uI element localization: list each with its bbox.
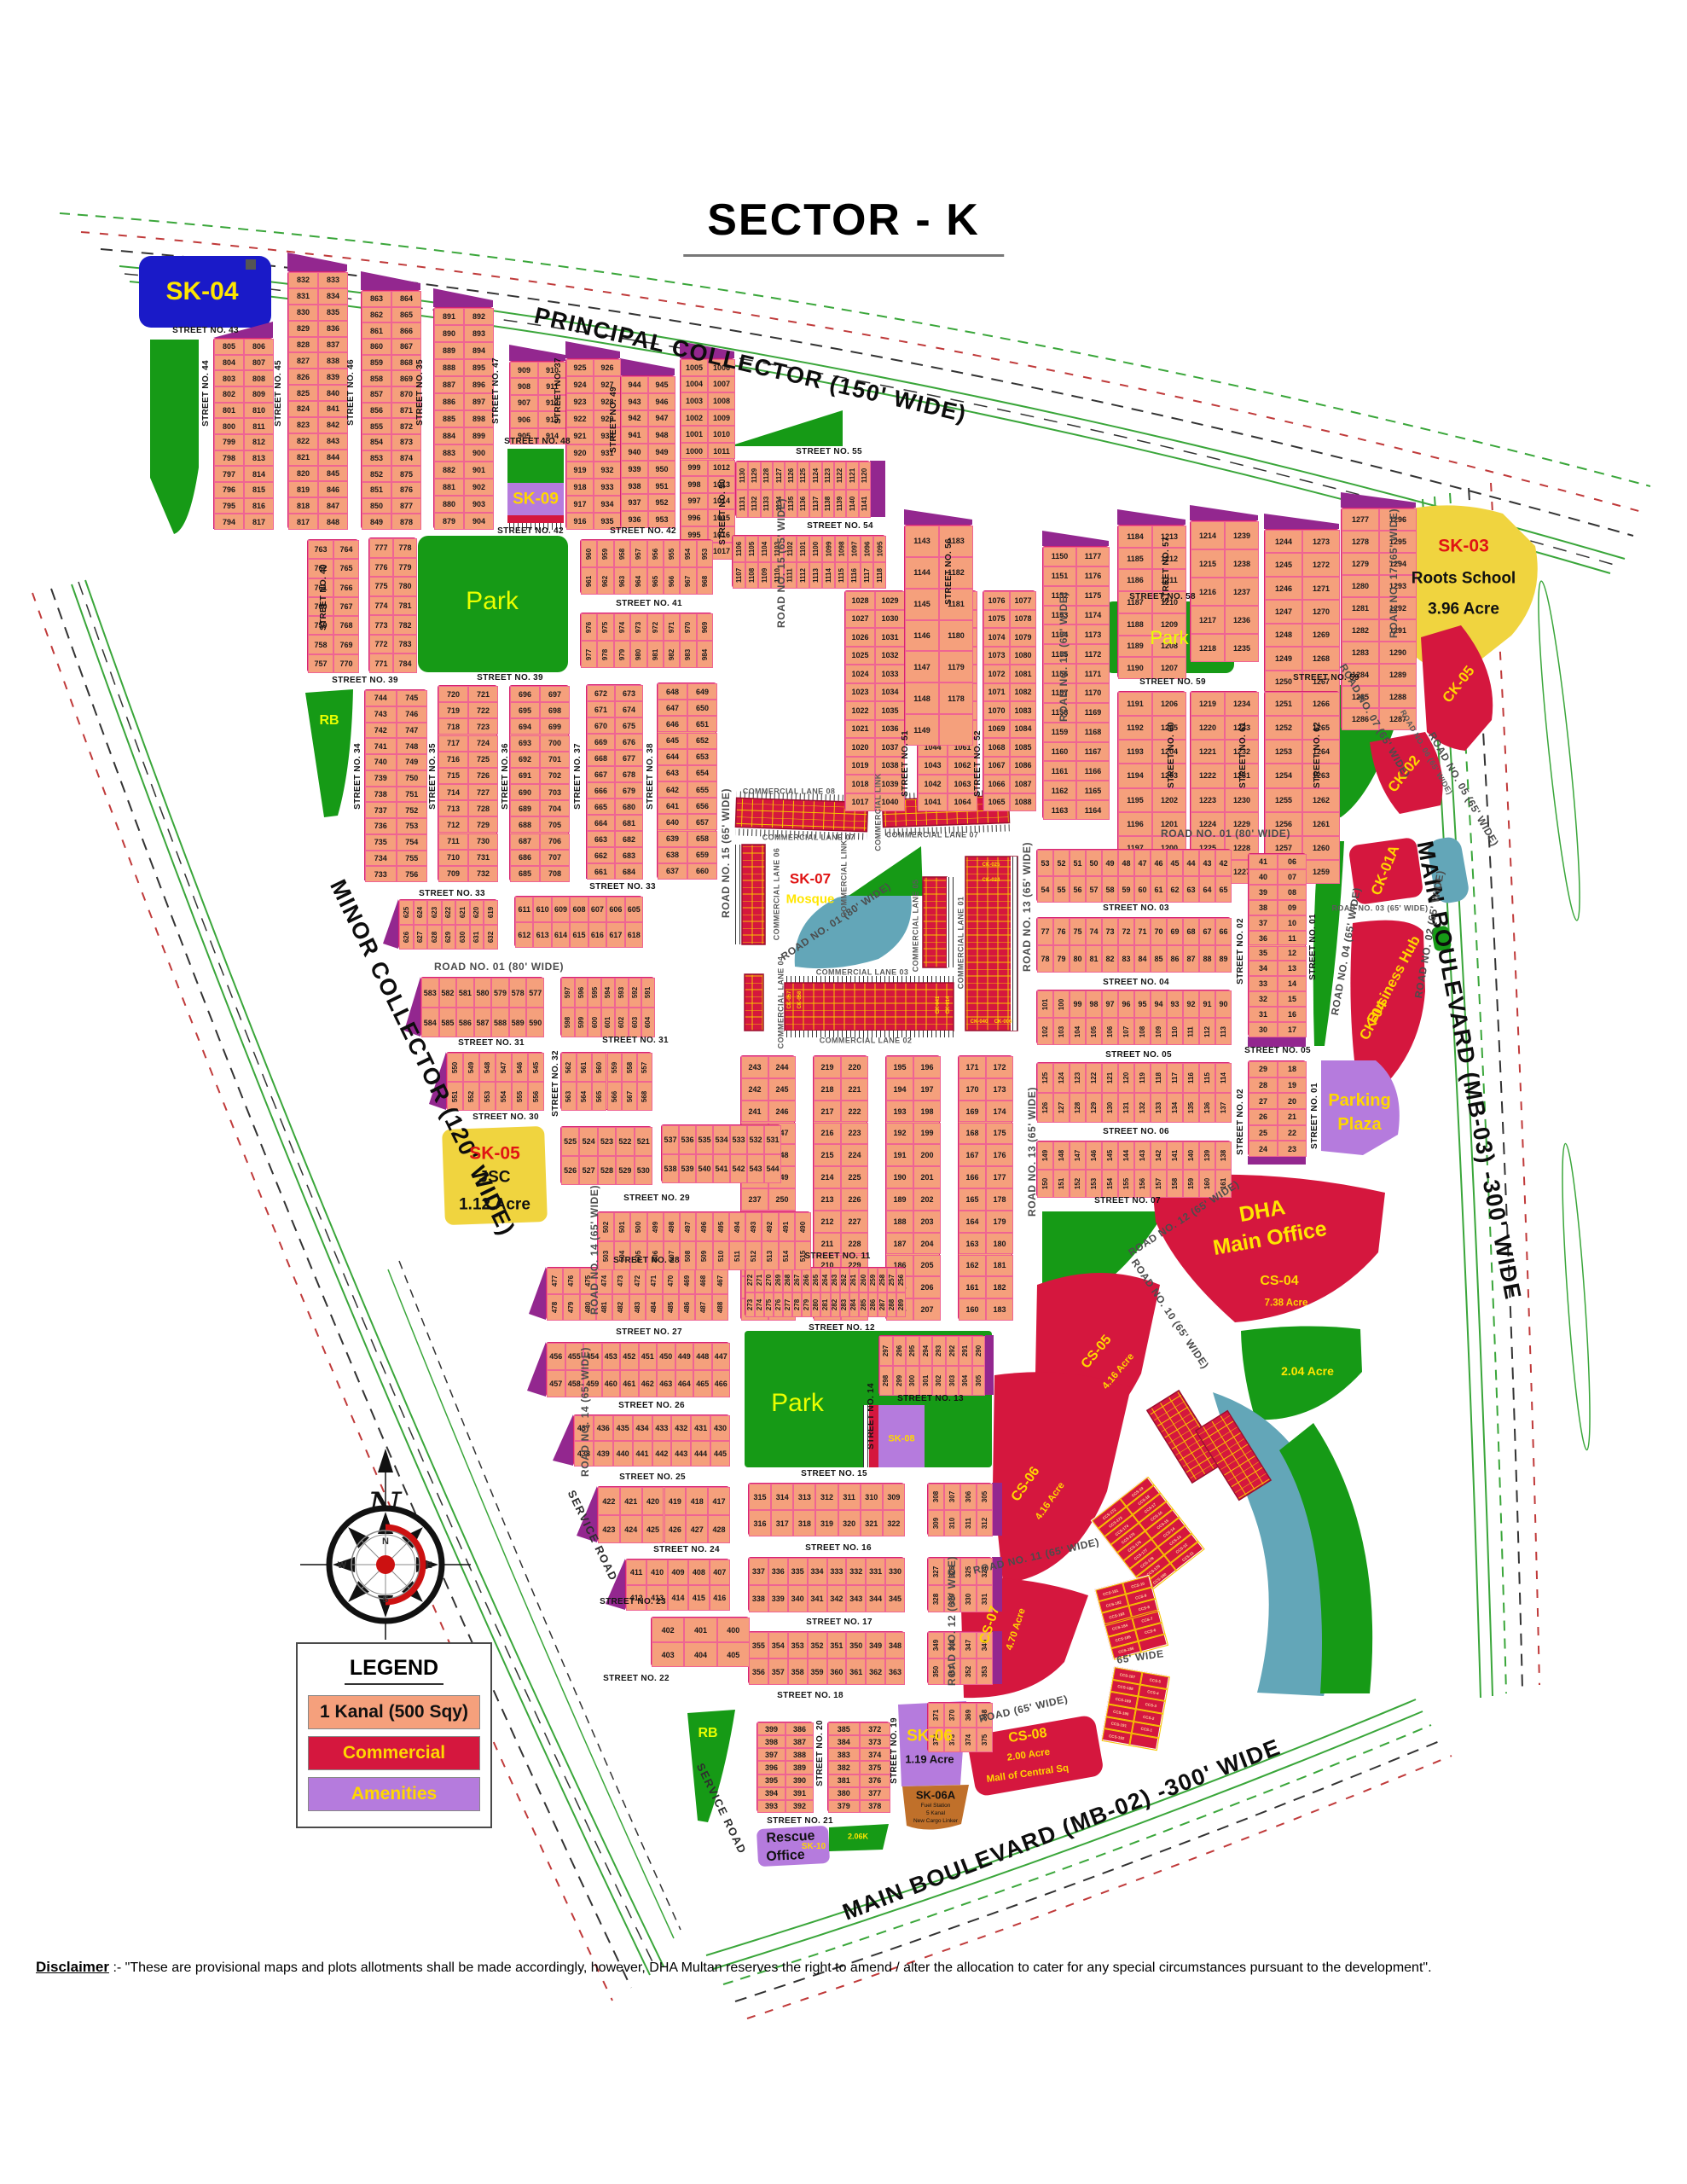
disclaimer-label: Disclaimer <box>36 1959 109 1975</box>
rb-area <box>305 689 353 817</box>
park-south-area <box>745 1331 992 1467</box>
ck-02-area <box>1370 732 1443 814</box>
green-area <box>150 340 199 534</box>
parking-plaza-area <box>1321 1060 1400 1155</box>
legend-item: 1 Kanal (500 Sqy) <box>308 1695 480 1729</box>
sector-k-map-page: SECTOR - K <box>0 0 1687 2184</box>
compass-rose: N N S E W <box>300 1449 471 1640</box>
water-body <box>795 892 912 968</box>
sk-06-area <box>898 1701 966 1786</box>
sk-08-area <box>878 1405 925 1467</box>
legend: LEGEND 1 Kanal (500 Sqy)CommercialAmenit… <box>296 1642 492 1828</box>
compass-n: N <box>382 1536 389 1547</box>
park-nw-area <box>418 536 568 672</box>
cs-08-area <box>966 1714 1104 1797</box>
legend-title: LEGEND <box>345 1656 443 1685</box>
compass-w: W <box>338 1560 347 1571</box>
green-area <box>729 410 843 446</box>
legend-item: Amenities <box>308 1777 480 1811</box>
sk-09-area <box>507 449 564 530</box>
legend-item: Commercial <box>308 1736 480 1770</box>
disclaimer: Disclaimer :- "These are provisional map… <box>36 1959 1656 1976</box>
water-body <box>1426 835 1471 905</box>
sk-06a-fuel-station-area <box>902 1785 969 1830</box>
map-canvas: N N S E W <box>0 0 1687 2184</box>
cs-06-area <box>993 1372 1131 1583</box>
cs-07-area <box>960 1577 1088 1698</box>
sk-05-jsc-area <box>442 1126 548 1225</box>
sk-04-area <box>139 256 271 328</box>
compass-s: S <box>382 1594 388 1605</box>
rb-area <box>687 1710 735 1822</box>
green-area <box>1313 841 1344 1046</box>
park-ne-area <box>1104 601 1234 673</box>
ck-01a-area <box>1348 837 1424 905</box>
green-2-04-acre-area <box>1241 1326 1362 1420</box>
cs-04-area <box>1151 1175 1385 1322</box>
compass-e: E <box>426 1560 432 1571</box>
rescue-office-area <box>757 1826 830 1867</box>
disclaimer-text: :- "These are provisional maps and plots… <box>109 1960 1432 1975</box>
green-area <box>829 1824 889 1851</box>
green-area <box>849 846 923 896</box>
